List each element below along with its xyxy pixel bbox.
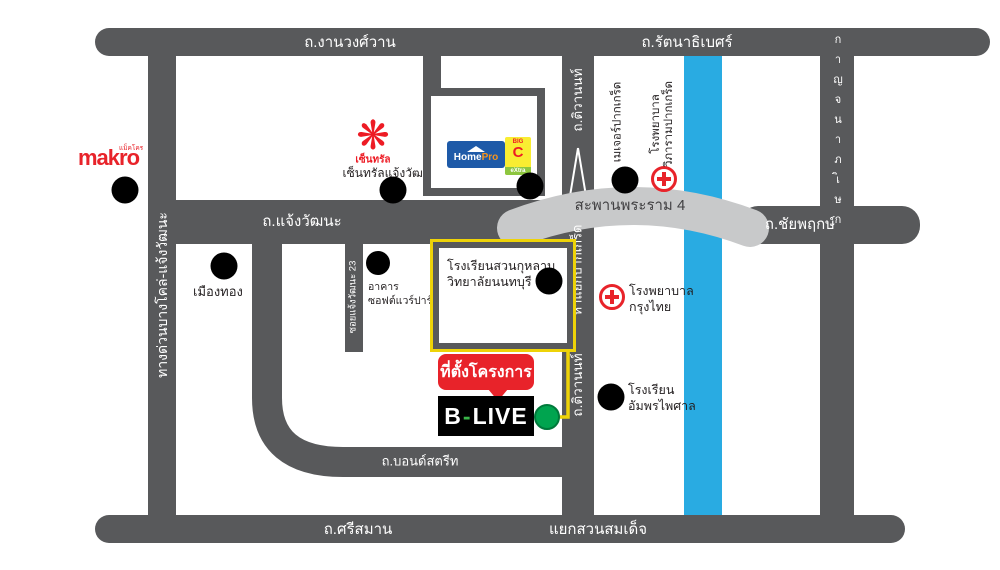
bigc-c-text: C [513, 145, 524, 160]
road-label-tiwanon-top: ถ.ติวานนท์ [570, 68, 586, 131]
junction-label-suan-somdet: แยกสวนสมเด็จ [549, 517, 647, 541]
homepro-pro-text: Pro [482, 152, 499, 163]
bigc-logo: BIG C eXtra [505, 137, 531, 175]
makro-logo-thai-sub: แม็คโคร [119, 143, 143, 153]
road-label-tiwanon-bottom: ถ.ติวานนท์ [570, 353, 586, 416]
road-chaengwatthana [148, 200, 594, 244]
location-dot-amphon [598, 384, 625, 411]
suankularb-school-block [430, 239, 576, 352]
blive-dash: - [463, 403, 472, 430]
homepro-home-text: Home [454, 152, 482, 163]
hospital-cross-icon-vipharam [651, 166, 677, 192]
major-pakkret-label: เมเจอร์ปากเกร็ด [611, 82, 624, 163]
road-label-soi23: ซอยแจ้งวัฒนะ 23 [349, 261, 360, 334]
amphon-school-label: โรงเรียน อัมพรไพศาล [628, 382, 696, 415]
road-label-rattanathibet: ถ.รัตนาธิเบศร์ [641, 30, 732, 54]
homepro-logo: HomePro [447, 141, 505, 168]
road-label-kanchanaphisek: กาญจนาภิเษก [828, 30, 846, 230]
location-dot-software-park [366, 251, 390, 275]
blive-b-text: B [444, 403, 462, 430]
road-label-expressway: ทางด่วนบางโคล่-แจ้งวัฒนะ [154, 212, 170, 378]
location-dot-central [380, 177, 407, 204]
bridge-label-rama4: สะพานพระราม 4 [575, 193, 686, 217]
road-label-ngamwongwan: ถ.งานวงศ์วาน [304, 30, 396, 54]
blive-logo: B-LIVE [438, 396, 534, 436]
muang-thong-label: เมืองทอง [193, 284, 243, 301]
road-label-chaengwatthana: ถ.แจ้งวัฒนะ [262, 209, 341, 233]
central-flower-icon: ❋ [356, 116, 390, 156]
blive-live-text: LIVE [473, 403, 528, 430]
project-location-callout: ที่ตั้งโครงการ [438, 354, 534, 390]
road-label-bond-street: ถ.บอนด์สตรีท [382, 451, 459, 472]
road-label-srisaman: ถ.ศรีสมาน [324, 517, 393, 541]
software-park-label: อาคาร ซอฟต์แวร์ปาร์ค [368, 281, 439, 308]
vipharam-hospital-label: โรงพยาบาล วิภารามปากเกร็ด [650, 81, 676, 167]
location-map: ถ.งานวงศ์วาน ถ.รัตนาธิเบศร์ ทางด่วนบางโค… [0, 0, 1000, 570]
road-top [95, 28, 990, 56]
location-dot-muang-thong [211, 253, 238, 280]
krungthai-hospital-label: โรงพยาบาล กรุงไทย [629, 283, 694, 316]
location-dot-major-pakkret [612, 167, 639, 194]
road-label-chaiyaphruek: ถ.ชัยพฤกษ์ [765, 212, 835, 236]
location-dot-suankularb [536, 268, 563, 295]
road-bottom [95, 515, 905, 543]
location-dot-homepro [517, 173, 544, 200]
project-location-dot [534, 404, 560, 430]
hospital-cross-icon-krungthai [599, 284, 625, 310]
project-callout-text: ที่ตั้งโครงการ [440, 360, 532, 385]
location-dot-makro [112, 177, 139, 204]
